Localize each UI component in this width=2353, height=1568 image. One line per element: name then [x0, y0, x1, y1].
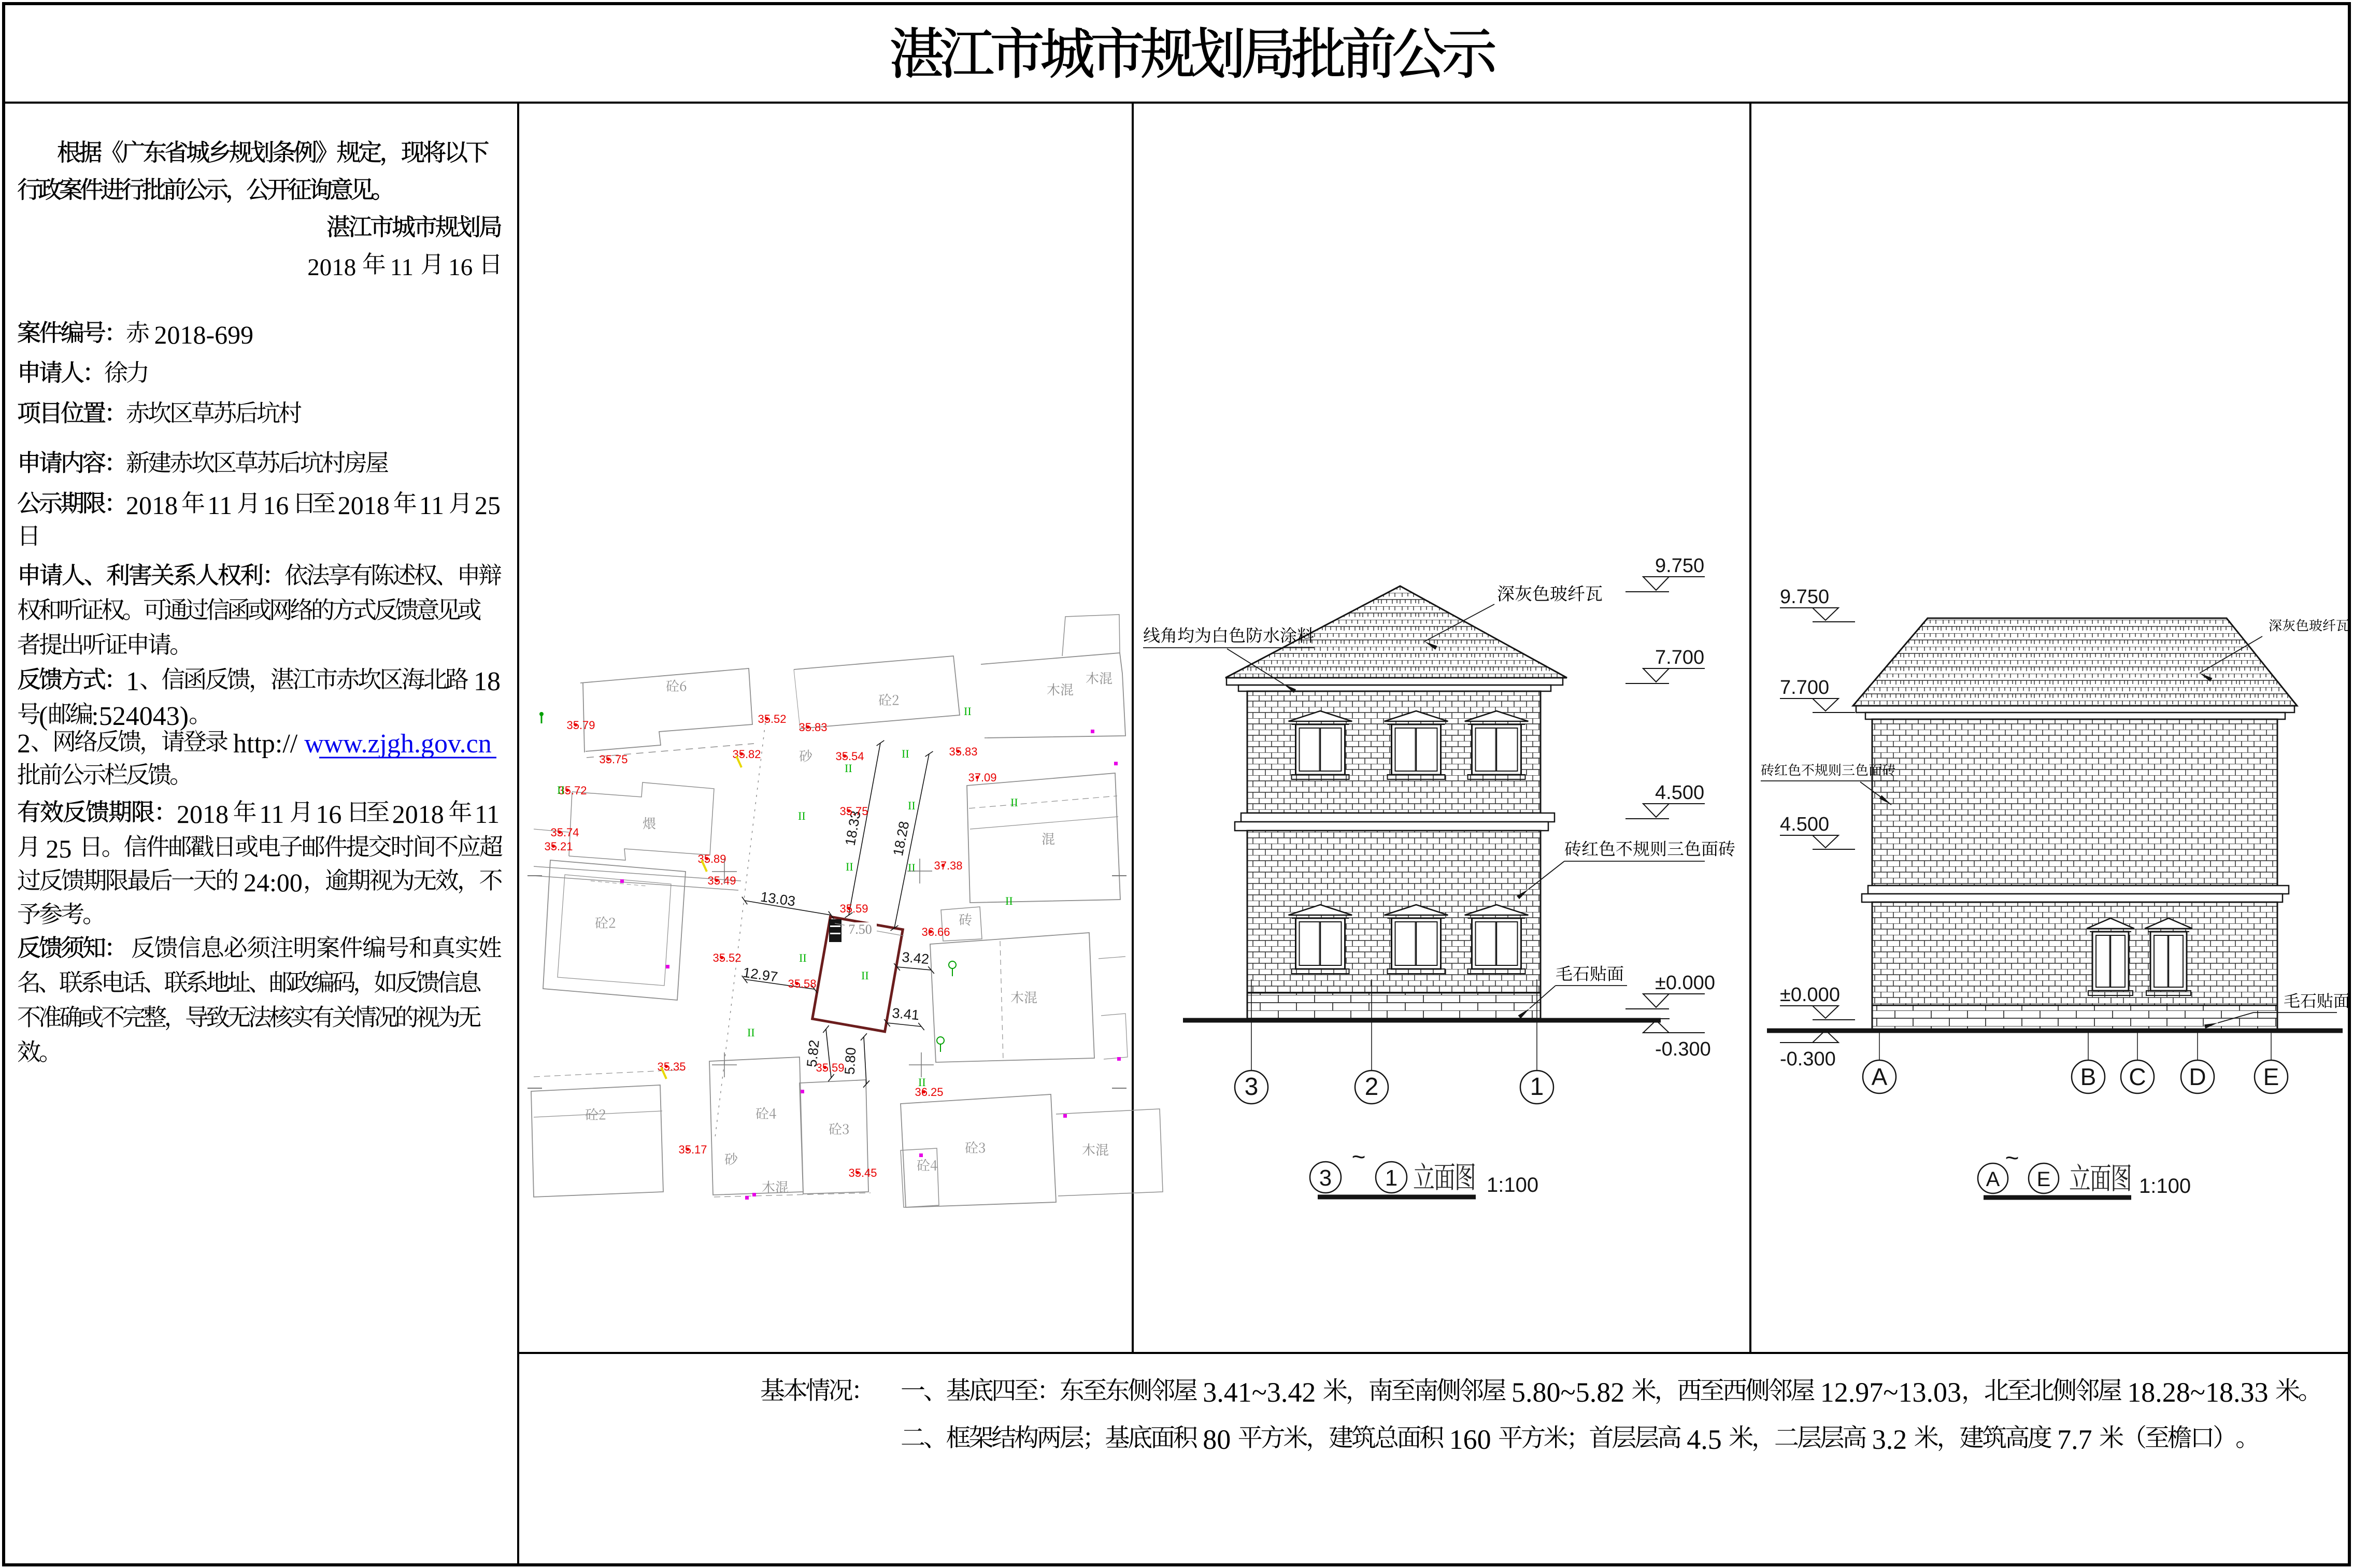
svg-text:II: II [918, 1076, 926, 1089]
svg-text:4.500: 4.500 [1780, 814, 1829, 835]
svg-text:160: 160 [1442, 1424, 1498, 1455]
svg-text:2018: 2018 [126, 491, 184, 520]
svg-text:35.52: 35.52 [758, 712, 786, 725]
svg-text:11: 11 [384, 254, 420, 281]
svg-text:35.52: 35.52 [712, 951, 741, 964]
svg-text:36.66: 36.66 [921, 925, 950, 938]
svg-text:2: 2 [1365, 1073, 1379, 1101]
svg-text:35.74: 35.74 [550, 826, 579, 839]
svg-text:5.80: 5.80 [842, 1047, 859, 1075]
svg-text:11: 11 [253, 800, 291, 829]
svg-text:II: II [908, 799, 916, 812]
svg-text:16: 16 [256, 491, 295, 520]
svg-text:(: ( [39, 702, 48, 731]
svg-text:A: A [1872, 1063, 1888, 1090]
svg-text:A: A [1986, 1168, 2000, 1191]
svg-text:1:100: 1:100 [2139, 1175, 2191, 1198]
svg-text:35.75: 35.75 [599, 753, 628, 766]
svg-text:II: II [557, 783, 565, 796]
svg-text:1: 1 [126, 667, 139, 696]
svg-text:11: 11 [201, 491, 239, 520]
svg-text:35.21: 35.21 [544, 840, 573, 853]
svg-text:II: II [845, 762, 852, 775]
svg-text:37.38: 37.38 [934, 859, 962, 872]
svg-text:2018: 2018 [331, 491, 396, 520]
svg-text:±0.000: ±0.000 [1655, 972, 1715, 994]
svg-text:±0.000: ±0.000 [1780, 984, 1840, 1006]
svg-text:II: II [1005, 894, 1013, 907]
svg-text:35.83: 35.83 [949, 745, 977, 758]
svg-text:E: E [2037, 1168, 2051, 1191]
svg-text:II: II [846, 860, 853, 873]
svg-text:35.79: 35.79 [566, 719, 595, 732]
svg-text:4.500: 4.500 [1655, 782, 1704, 804]
svg-text:7.7: 7.7 [2050, 1424, 2100, 1455]
svg-text:35.58: 35.58 [788, 977, 816, 990]
svg-text:5.80~5.82: 5.80~5.82 [1505, 1377, 1632, 1408]
svg-text:25: 25 [468, 491, 501, 520]
svg-text:37.09: 37.09 [968, 771, 996, 784]
svg-text:II: II [861, 969, 869, 982]
svg-text:-0.300: -0.300 [1655, 1038, 1711, 1060]
svg-text:II: II [747, 1026, 755, 1039]
svg-text:7.700: 7.700 [1655, 647, 1704, 668]
svg-text:16: 16 [309, 800, 348, 829]
svg-text:B: B [2080, 1063, 2097, 1090]
svg-text:~: ~ [2005, 1144, 2019, 1171]
svg-text:7.700: 7.700 [1780, 677, 1829, 699]
svg-text:II: II [964, 705, 972, 718]
svg-text:3.2: 3.2 [1865, 1424, 1914, 1455]
svg-text:35.17: 35.17 [678, 1143, 707, 1156]
svg-text:24:00: 24:00 [237, 868, 303, 897]
svg-text:-0.300: -0.300 [1780, 1048, 1836, 1070]
svg-text:D: D [2189, 1063, 2206, 1090]
svg-text:18.28~18.33: 18.28~18.33 [2120, 1377, 2275, 1408]
svg-text:2: 2 [17, 729, 31, 759]
svg-text:1: 1 [1385, 1165, 1397, 1191]
svg-text:4.5: 4.5 [1680, 1424, 1729, 1455]
svg-text:35.59: 35.59 [839, 902, 868, 915]
svg-text:9.750: 9.750 [1655, 555, 1704, 577]
svg-text:II: II [799, 951, 807, 964]
svg-text:11: 11 [468, 800, 500, 829]
svg-text:II: II [1010, 796, 1018, 809]
svg-text:2018-699: 2018-699 [148, 320, 253, 349]
svg-text:3.41~3.42: 3.41~3.42 [1196, 1377, 1323, 1408]
svg-text:2018: 2018 [177, 800, 235, 829]
svg-text:II: II [902, 747, 909, 760]
svg-text:3.41: 3.41 [891, 1005, 920, 1023]
svg-text:35.45: 35.45 [848, 1166, 877, 1179]
svg-text:II: II [798, 809, 806, 822]
svg-text:35.75: 35.75 [839, 805, 868, 818]
svg-text:1:100: 1:100 [1487, 1174, 1538, 1196]
svg-text::524043): :524043) [91, 702, 189, 731]
svg-text:II: II [908, 861, 916, 874]
svg-text:1: 1 [1530, 1073, 1544, 1101]
svg-text:35.49: 35.49 [707, 874, 736, 887]
svg-text:2018: 2018 [307, 254, 362, 281]
svg-text:11: 11 [412, 491, 450, 520]
svg-text:7.50: 7.50 [848, 922, 872, 937]
svg-text:3.42: 3.42 [901, 949, 930, 967]
svg-text:http://: http:// [226, 729, 304, 759]
svg-text:18: 18 [467, 667, 501, 696]
svg-text:2018: 2018 [386, 800, 450, 829]
svg-text:35.35: 35.35 [657, 1060, 686, 1073]
svg-text:E: E [2263, 1063, 2279, 1090]
svg-text:C: C [2129, 1063, 2146, 1090]
svg-text:3: 3 [1245, 1073, 1259, 1101]
svg-text:35.83: 35.83 [798, 721, 827, 734]
svg-text:9.750: 9.750 [1780, 586, 1829, 608]
svg-text:35.54: 35.54 [835, 750, 864, 763]
svg-text:35.59: 35.59 [816, 1061, 844, 1074]
svg-text:www.zjgh.gov.cn: www.zjgh.gov.cn [304, 729, 492, 759]
svg-text:12.97~13.03: 12.97~13.03 [1813, 1377, 1961, 1408]
svg-text:~: ~ [1352, 1143, 1366, 1170]
svg-text:25: 25 [39, 834, 78, 863]
svg-text:16: 16 [443, 254, 479, 281]
svg-text:3: 3 [1319, 1165, 1332, 1191]
svg-text:80: 80 [1196, 1424, 1238, 1455]
